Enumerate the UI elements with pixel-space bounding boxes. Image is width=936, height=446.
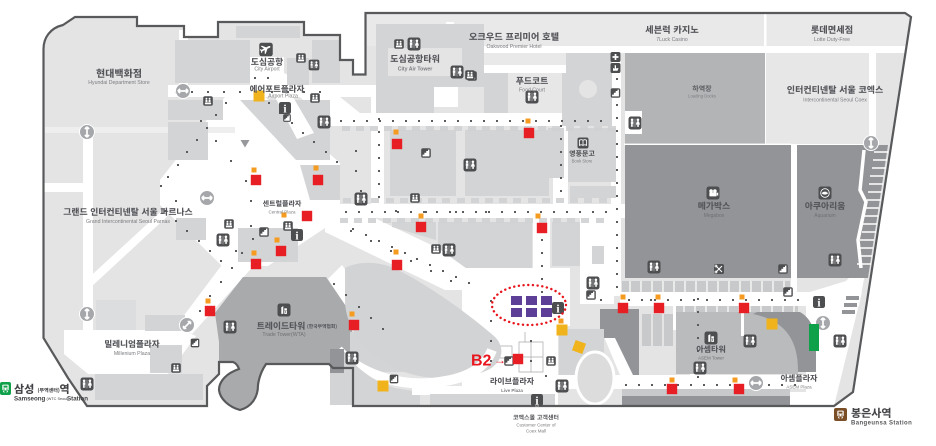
svg-text:Airport Plaza: Airport Plaza bbox=[268, 94, 298, 100]
svg-text:Lotte Duty-Free: Lotte Duty-Free bbox=[814, 37, 850, 43]
svg-text:ASEM Plaza: ASEM Plaza bbox=[786, 385, 812, 390]
svg-text:Central Plaza: Central Plaza bbox=[268, 210, 296, 215]
svg-text:Oakwood Premier Hotel: Oakwood Premier Hotel bbox=[486, 44, 541, 50]
svg-text:7Luck Casino: 7Luck Casino bbox=[656, 37, 688, 43]
svg-text:Loading Docks: Loading Docks bbox=[688, 94, 716, 99]
svg-text:Aquarium: Aquarium bbox=[814, 213, 835, 219]
svg-text:City Airport: City Airport bbox=[254, 67, 280, 73]
svg-text:CS: CS bbox=[535, 404, 539, 408]
svg-text:Book Store: Book Store bbox=[572, 159, 593, 164]
svg-text:Grand Intercontinental Seoul P: Grand Intercontinental Seoul Parnas bbox=[86, 219, 170, 225]
svg-text:Megabox: Megabox bbox=[704, 213, 725, 219]
svg-text:Samseong: Samseong bbox=[14, 396, 46, 403]
svg-text:Food Court: Food Court bbox=[519, 88, 546, 94]
svg-text:Intercontinental Seoul Coex: Intercontinental Seoul Coex bbox=[803, 98, 867, 104]
svg-text:(WTC Seoul): (WTC Seoul) bbox=[47, 397, 70, 401]
svg-text:Station: Station bbox=[67, 396, 88, 403]
svg-text:City Air Tower: City Air Tower bbox=[398, 67, 433, 73]
svg-text:→: → bbox=[494, 353, 506, 367]
svg-text:Live Plaza: Live Plaza bbox=[501, 388, 523, 393]
svg-text:Hyundai Department Store: Hyundai Department Store bbox=[88, 80, 150, 86]
svg-text:B2: B2 bbox=[471, 353, 492, 370]
svg-text:ASEM Tower: ASEM Tower bbox=[698, 356, 724, 361]
svg-text:Coex Mall: Coex Mall bbox=[526, 429, 546, 434]
svg-text:Trade Tower(WTA): Trade Tower(WTA) bbox=[262, 332, 305, 338]
svg-text:Millenium Plaza: Millenium Plaza bbox=[114, 351, 150, 357]
svg-text:Bangeunsa Station: Bangeunsa Station bbox=[851, 421, 912, 427]
svg-text:Customer Center of: Customer Center of bbox=[516, 423, 556, 428]
